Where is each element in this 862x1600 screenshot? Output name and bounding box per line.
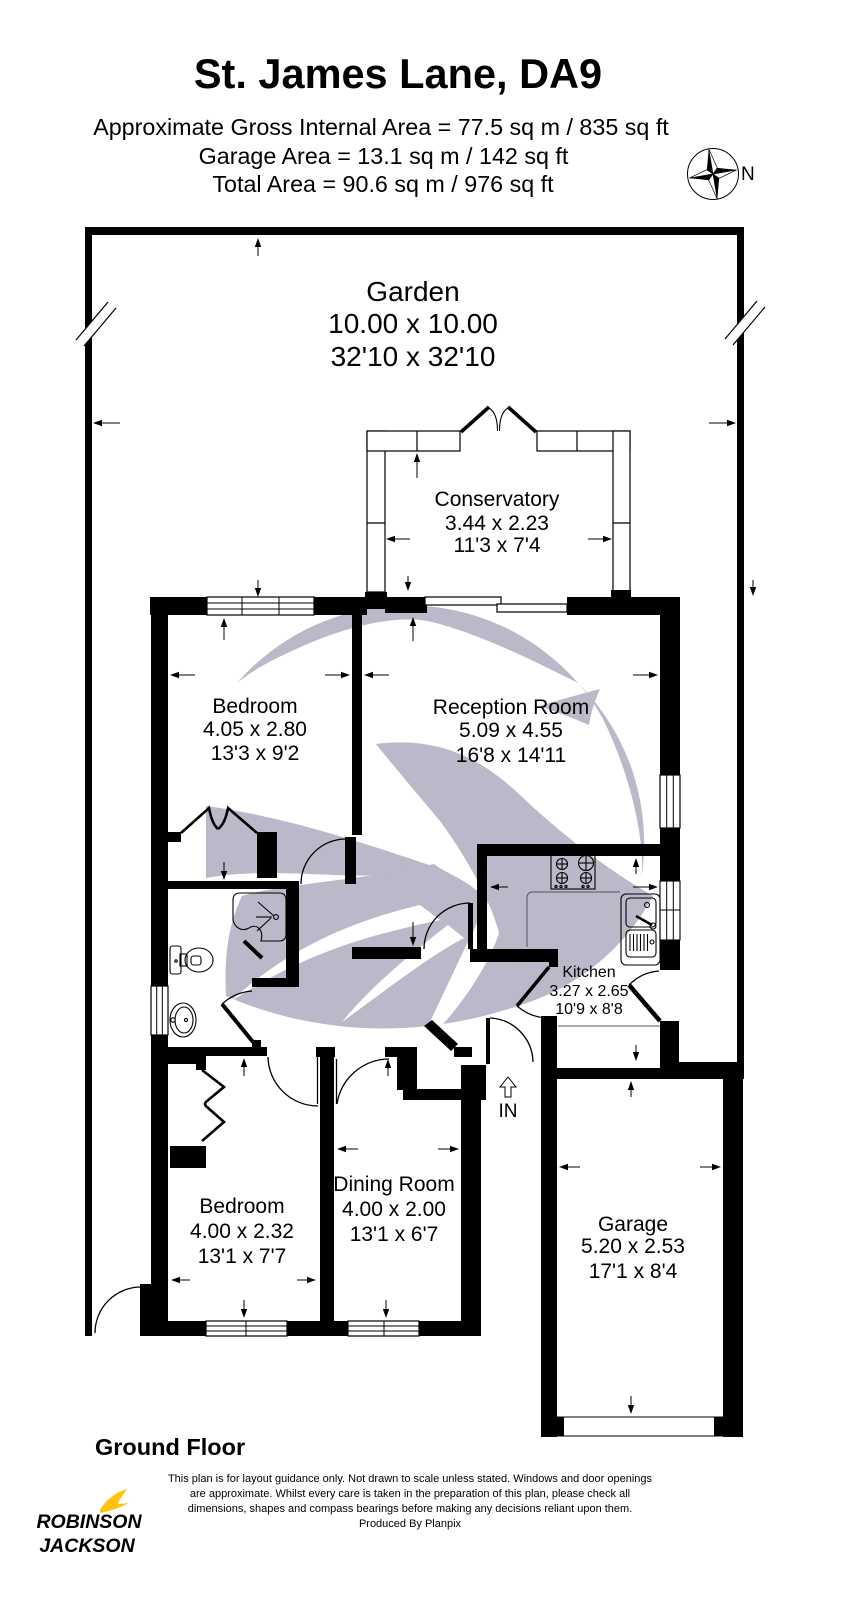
svg-text:11'3 x 7'4: 11'3 x 7'4 [453,534,540,557]
svg-text:Ground Floor: Ground Floor [95,1434,245,1460]
svg-text:3.44 x 2.23: 3.44 x 2.23 [445,512,549,535]
svg-text:13'3 x 9'2: 13'3 x 9'2 [211,742,300,765]
svg-text:5.20 x 2.53: 5.20 x 2.53 [581,1235,685,1258]
svg-text:Kitchen: Kitchen [562,964,615,981]
svg-text:32'10 x 32'10: 32'10 x 32'10 [331,341,496,372]
svg-text:10'9 x 8'8: 10'9 x 8'8 [555,1001,623,1018]
svg-text:16'8 x 14'11: 16'8 x 14'11 [456,744,566,767]
svg-text:13'1 x 7'7: 13'1 x 7'7 [198,1245,287,1268]
svg-text:Garden: Garden [366,276,459,307]
svg-text:Conservatory: Conservatory [435,488,560,511]
svg-text:This plan is for layout guidan: This plan is for layout guidance only. N… [168,1473,653,1485]
svg-text:Garage: Garage [598,1213,668,1236]
svg-text:St. James Lane, DA9: St. James Lane, DA9 [194,50,602,97]
svg-text:IN: IN [499,1101,518,1122]
svg-text:Garage Area = 13.1 sq m / 142: Garage Area = 13.1 sq m / 142 sq ft [199,143,569,169]
svg-text:4.00 x 2.32: 4.00 x 2.32 [190,1220,294,1243]
svg-text:17'1 x 8'4: 17'1 x 8'4 [589,1260,678,1283]
svg-text:dimensions, shapes and compass: dimensions, shapes and compass bearings … [188,1503,633,1515]
svg-text:Bedroom: Bedroom [199,1195,284,1218]
svg-text:are approximate. Whilst every: are approximate. Whilst every care is ta… [190,1488,630,1500]
svg-text:N: N [741,164,755,185]
svg-text:13'1 x 6'7: 13'1 x 6'7 [350,1223,439,1246]
svg-text:Reception Room: Reception Room [433,696,589,719]
svg-text:ROBINSON: ROBINSON [36,1511,142,1533]
svg-text:Bedroom: Bedroom [212,695,297,718]
svg-text:JACKSON: JACKSON [39,1535,135,1557]
svg-text:5.09 x 4.55: 5.09 x 4.55 [459,719,563,742]
svg-text:3.27 x 2.65: 3.27 x 2.65 [549,983,628,1000]
svg-text:4.05 x 2.80: 4.05 x 2.80 [203,718,307,741]
svg-text:4.00 x 2.00: 4.00 x 2.00 [342,1198,446,1221]
svg-text:Approximate Gross Internal Are: Approximate Gross Internal Area = 77.5 s… [93,114,669,140]
svg-text:Produced By Planpix: Produced By Planpix [359,1518,462,1530]
svg-text:Total Area = 90.6 sq m / 976 s: Total Area = 90.6 sq m / 976 sq ft [212,171,554,197]
svg-text:Dining Room: Dining Room [333,1173,454,1196]
svg-text:10.00 x 10.00: 10.00 x 10.00 [328,308,498,339]
